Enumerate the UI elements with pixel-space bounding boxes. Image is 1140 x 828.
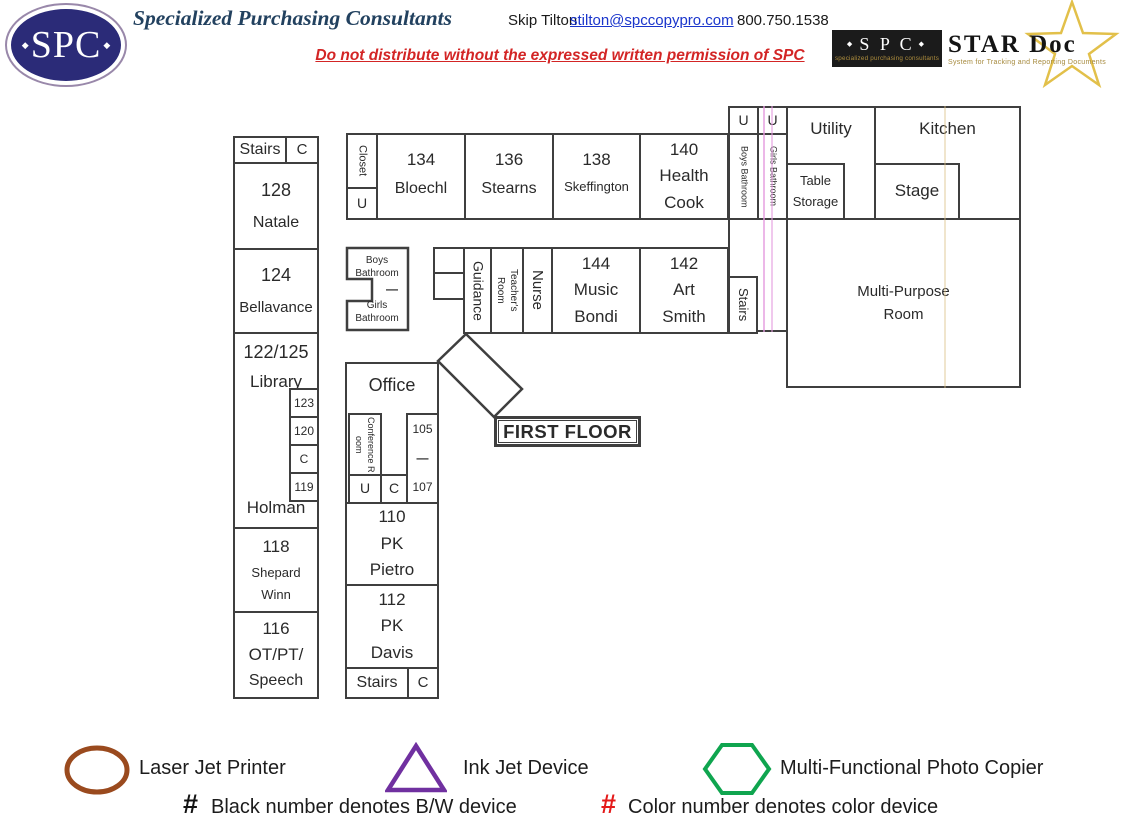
room-label: Boys: [366, 254, 388, 267]
room-label: Bathroom: [355, 267, 398, 280]
star-doc-title: STAR Doc: [948, 31, 1077, 59]
first-floor-title: FIRST FLOOR: [498, 420, 637, 443]
room-stage: Stage: [874, 163, 960, 220]
red-hash-icon: #: [601, 789, 616, 820]
room-label: C: [418, 671, 429, 694]
room-stairs-nw: Stairs: [233, 136, 287, 164]
room-label: C: [389, 478, 399, 500]
company-name: Specialized Purchasing Consultants: [133, 6, 452, 31]
room-label: Office: [369, 372, 416, 400]
room-label: Kitchen: [919, 116, 976, 142]
room-label: Closet: [353, 145, 370, 176]
room-number: 128: [261, 177, 291, 205]
room-label: Table: [800, 172, 831, 190]
room-label: 120: [294, 422, 314, 441]
cell-123: 123: [289, 388, 319, 418]
star-doc-subtitle: System for Tracking and Reporting Docume…: [948, 59, 1106, 66]
ink-jet-triangle-icon: [385, 742, 447, 794]
room-number: 122/125: [243, 339, 308, 367]
legend-inkjet-label: Ink Jet Device: [463, 757, 589, 780]
diamond-icon: ◆: [103, 40, 110, 51]
legend-mfp-label: Multi-Functional Photo Copier: [780, 757, 1043, 780]
cell-guidance-a: [433, 247, 465, 274]
room-name: Bellavance: [239, 296, 312, 319]
room-name: Bondi: [574, 305, 617, 330]
room-number: 136: [495, 147, 523, 173]
room-label: U: [767, 110, 777, 132]
room-134-bloechl: 134 Bloechl: [376, 133, 466, 220]
room-number: 138: [582, 147, 610, 173]
phone-number: 800.750.1538: [737, 12, 829, 29]
room-teachers-room: Teacher's Room: [490, 247, 524, 334]
cell-u-boys: U: [728, 106, 759, 135]
room-name: Bloechl: [395, 177, 447, 202]
room-name: Speech: [249, 670, 303, 692]
cell-u-girls: U: [757, 106, 788, 135]
room-label: Boys Bathroom: [737, 146, 751, 208]
room-label: Utility: [810, 116, 852, 142]
star-doc-spc-text: ◆ S P C ◆: [847, 35, 927, 53]
room-number: 107: [412, 481, 432, 494]
star-doc-spc-badge: ◆ S P C ◆ specialized purchasing consult…: [832, 30, 942, 67]
room-label: Conference Room: [353, 417, 377, 473]
room-closet: Closet: [346, 133, 378, 189]
contact-name: Skip Tilton: [508, 12, 577, 29]
distribution-notice: Do not distribute without the expressed …: [300, 47, 820, 65]
room-multi-purpose: Multi-Purpose Room: [786, 218, 1021, 388]
room-name: Cook: [664, 191, 704, 216]
room-label: Stairs: [733, 288, 753, 321]
room-label: C: [300, 450, 309, 469]
entry-diamond-shape: [438, 334, 522, 417]
room-name: Natale: [253, 211, 299, 236]
room-number: 144: [582, 252, 610, 277]
room-140-health-cook: 140 Health Cook: [639, 133, 729, 220]
room-stairs-s: Stairs: [345, 667, 409, 699]
room-table-storage: Table Storage: [786, 163, 845, 220]
room-124-bellavance: 124 Bellavance: [233, 248, 319, 334]
legend-laser-label: Laser Jet Printer: [139, 757, 286, 780]
room-mid-bathrooms: Boys Bathroom — Girls Bathroom: [346, 247, 408, 332]
room-label: Room: [883, 304, 923, 325]
room-girls-bathroom: Girls Bathroom: [757, 133, 788, 220]
room-number: 116: [262, 618, 289, 641]
legend-bw-label: Black number denotes B/W device: [211, 796, 517, 819]
laser-jet-oval-icon: [62, 744, 132, 796]
room-conference: Conference Room: [348, 413, 382, 476]
room-number: 112: [378, 588, 405, 613]
cell-c: C: [289, 444, 319, 474]
star-doc-spc-subtext: specialized purchasing consultants: [835, 55, 939, 62]
legend-color-label: Color number denotes color device: [628, 796, 938, 819]
room-name: Davis: [371, 641, 414, 666]
room-136-stearns: 136 Stearns: [464, 133, 554, 220]
copier-hexagon-icon: [702, 742, 772, 796]
corridor-wall: [756, 330, 788, 332]
room-boys-bathroom: Boys Bathroom: [728, 133, 759, 220]
cell-120: 120: [289, 416, 319, 446]
room-name: Winn: [261, 587, 291, 603]
diamond-icon: ◆: [847, 41, 855, 48]
room-number: 134: [407, 147, 435, 173]
room-stairs-mid: Stairs: [728, 276, 758, 334]
room-label: Stairs: [357, 671, 398, 696]
room-number: 110: [378, 505, 405, 530]
room-label: Nurse: [526, 270, 549, 310]
room-label: C: [297, 138, 308, 161]
cell-guidance-b: [433, 272, 465, 300]
room-110-pk-pietro: 110 PK Pietro: [345, 502, 439, 586]
room-guidance: Guidance: [463, 247, 492, 334]
room-name: Pietro: [370, 558, 414, 583]
room-number: 142: [670, 252, 698, 277]
room-112-pk-davis: 112 PK Davis: [345, 584, 439, 669]
dash-divider: —: [417, 452, 429, 465]
room-label: Storage: [793, 193, 839, 211]
room-name: Shepard: [251, 565, 300, 581]
room-label: U: [357, 193, 367, 215]
room-label: Girls Bathroom: [766, 146, 780, 206]
room-name: PK: [381, 532, 404, 557]
star-doc-spc-letters: S P C: [859, 35, 914, 53]
room-116-ot-pt-speech: 116 OT/PT/ Speech: [233, 611, 319, 699]
room-label: 119: [294, 478, 313, 497]
scanned-floor-plan-page: ◆ SPC ◆ Specialized Purchasing Consultan…: [0, 0, 1140, 828]
diamond-icon: ◆: [22, 40, 29, 51]
room-number: 105: [412, 423, 432, 436]
room-number: 118: [262, 537, 289, 557]
room-number: 140: [670, 138, 698, 163]
room-name: Skeffington: [564, 177, 629, 197]
room-label: U: [738, 110, 748, 132]
room-118-shepard-winn: 118 Shepard Winn: [233, 527, 319, 613]
room-label: Stage: [895, 178, 939, 204]
room-142-art-smith: 142 Art Smith: [639, 247, 729, 334]
room-label: U: [360, 478, 370, 500]
black-hash-icon: #: [183, 789, 198, 820]
first-floor-title-box: FIRST FLOOR: [494, 416, 641, 447]
room-number: 124: [261, 262, 291, 290]
room-name: PK: [381, 614, 404, 639]
room-138-skeffington: 138 Skeffington: [552, 133, 641, 220]
room-name: Music: [574, 278, 618, 303]
room-label: Teacher's Room: [494, 259, 520, 323]
email-link[interactable]: stilton@spccopypro.com: [570, 12, 734, 29]
room-label: Guidance: [467, 261, 489, 321]
room-label: Girls: [367, 299, 388, 312]
room-closet-u: U: [346, 187, 378, 220]
cell-office-c: C: [380, 474, 408, 504]
corridor-wall: [728, 218, 730, 278]
spc-logo: ◆ SPC ◆: [7, 5, 125, 85]
room-144-music-bondi: 144 Music Bondi: [551, 247, 641, 334]
room-128-natale: 128 Natale: [233, 162, 319, 250]
room-label: Multi-Purpose: [857, 281, 950, 302]
dash-divider: —: [386, 282, 408, 298]
room-label: Stairs: [240, 138, 281, 163]
room-name: Smith: [662, 305, 705, 330]
cell-c-s: C: [407, 667, 439, 699]
diamond-icon: ◆: [919, 41, 927, 48]
room-nurse: Nurse: [522, 247, 553, 334]
spc-logo-text: SPC: [31, 23, 102, 67]
room-name: Stearns: [481, 177, 536, 202]
room-name: Art: [673, 278, 695, 303]
cell-119: 119: [289, 472, 319, 502]
cell-105-107: 105 — 107: [406, 413, 439, 504]
room-label: 123: [294, 394, 314, 413]
room-label: Bathroom: [355, 312, 398, 325]
cell-office-u: U: [348, 474, 382, 504]
room-name: Health: [659, 164, 708, 189]
room-name: OT/PT/: [249, 644, 304, 667]
room-closet-c-nw: C: [285, 136, 319, 164]
